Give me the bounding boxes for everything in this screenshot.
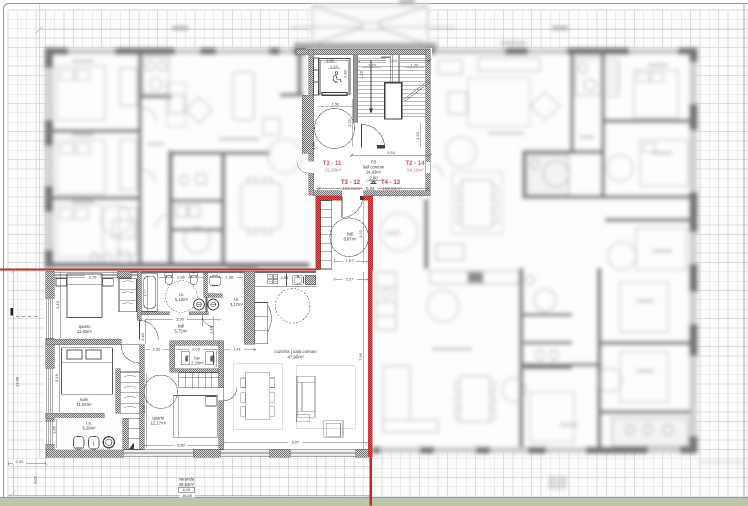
svg-text:5,10m²: 5,10m²: [175, 297, 189, 302]
svg-text:1,37: 1,37: [211, 354, 216, 363]
svg-text:2,86: 2,86: [177, 275, 186, 280]
svg-text:3,17m²: 3,17m²: [230, 302, 244, 307]
svg-text:5,72m²: 5,72m²: [174, 329, 188, 334]
svg-text:3,22: 3,22: [358, 229, 363, 238]
svg-text:2,29: 2,29: [347, 118, 352, 127]
svg-text:varanda: varanda: [179, 477, 195, 482]
svg-text:T4 - 13: T4 - 13: [381, 180, 401, 186]
svg-text:2,27: 2,27: [346, 276, 355, 281]
svg-text:11,62m²: 11,62m²: [76, 402, 92, 407]
svg-text:1,30: 1,30: [153, 346, 162, 351]
svg-text:133,01m²: 133,01m²: [342, 186, 362, 191]
svg-text:2,86: 2,86: [280, 275, 289, 280]
svg-text:cozinha | sala comum: cozinha | sala comum: [274, 349, 317, 354]
svg-text:19,36m²: 19,36m²: [325, 168, 342, 173]
svg-text:T3 - 11: T3 - 11: [323, 161, 342, 167]
svg-text:2,40: 2,40: [140, 332, 145, 341]
svg-text:3,18: 3,18: [54, 373, 59, 382]
svg-text:1,77: 1,77: [142, 288, 147, 297]
svg-text:1,40: 1,40: [343, 69, 348, 78]
svg-text:1,29: 1,29: [359, 70, 364, 79]
svg-text:MAQ: MAQ: [186, 356, 189, 362]
svg-text:3,54: 3,54: [387, 150, 396, 155]
svg-text:1,50: 1,50: [332, 101, 341, 106]
svg-text:14,43m²: 14,43m²: [366, 170, 382, 175]
svg-text:6,57: 6,57: [292, 440, 301, 445]
svg-text:47,95m²: 47,95m²: [287, 354, 304, 359]
svg-text:1,30: 1,30: [326, 58, 335, 63]
svg-text:2,80: 2,80: [369, 176, 378, 181]
svg-text:1,20: 1,20: [368, 63, 377, 68]
svg-text:1,18: 1,18: [208, 325, 213, 334]
svg-text:1,45: 1,45: [51, 425, 56, 434]
svg-text:94,18m²: 94,18m²: [407, 168, 424, 173]
svg-text:1,10: 1,10: [330, 64, 339, 69]
svg-text:3,10: 3,10: [55, 300, 60, 309]
svg-text:1,88: 1,88: [226, 275, 235, 280]
svg-text:1,41: 1,41: [233, 346, 242, 351]
svg-text:13,48: 13,48: [15, 376, 20, 387]
svg-text:6,26: 6,26: [183, 487, 192, 492]
svg-text:T2 - 14: T2 - 14: [405, 161, 425, 167]
svg-text:3,48: 3,48: [141, 404, 146, 413]
svg-text:12,17m²: 12,17m²: [151, 421, 167, 426]
svg-text:7,96: 7,96: [358, 352, 363, 361]
svg-text:1,20: 1,20: [411, 63, 420, 68]
svg-text:1,20: 1,20: [415, 131, 420, 140]
svg-text:T3 - 12: T3 - 12: [341, 180, 361, 186]
svg-text:3,24: 3,24: [389, 58, 398, 63]
svg-text:2,00: 2,00: [16, 459, 25, 464]
svg-text:2,20m²: 2,20m²: [191, 361, 205, 366]
svg-text:4,39: 4,39: [311, 141, 316, 150]
svg-text:3,76: 3,76: [89, 275, 98, 280]
svg-text:2,05: 2,05: [192, 346, 201, 351]
svg-text:16,65: 16,65: [182, 493, 193, 498]
svg-text:5,29m²: 5,29m²: [82, 426, 96, 431]
svg-text:1,67: 1,67: [346, 258, 355, 263]
svg-text:11,62m²: 11,62m²: [77, 329, 93, 334]
svg-text:3,50: 3,50: [177, 443, 186, 448]
svg-text:8,67m²: 8,67m²: [343, 237, 357, 242]
svg-text:3,50: 3,50: [176, 316, 185, 321]
svg-text:3,02: 3,02: [33, 475, 38, 484]
